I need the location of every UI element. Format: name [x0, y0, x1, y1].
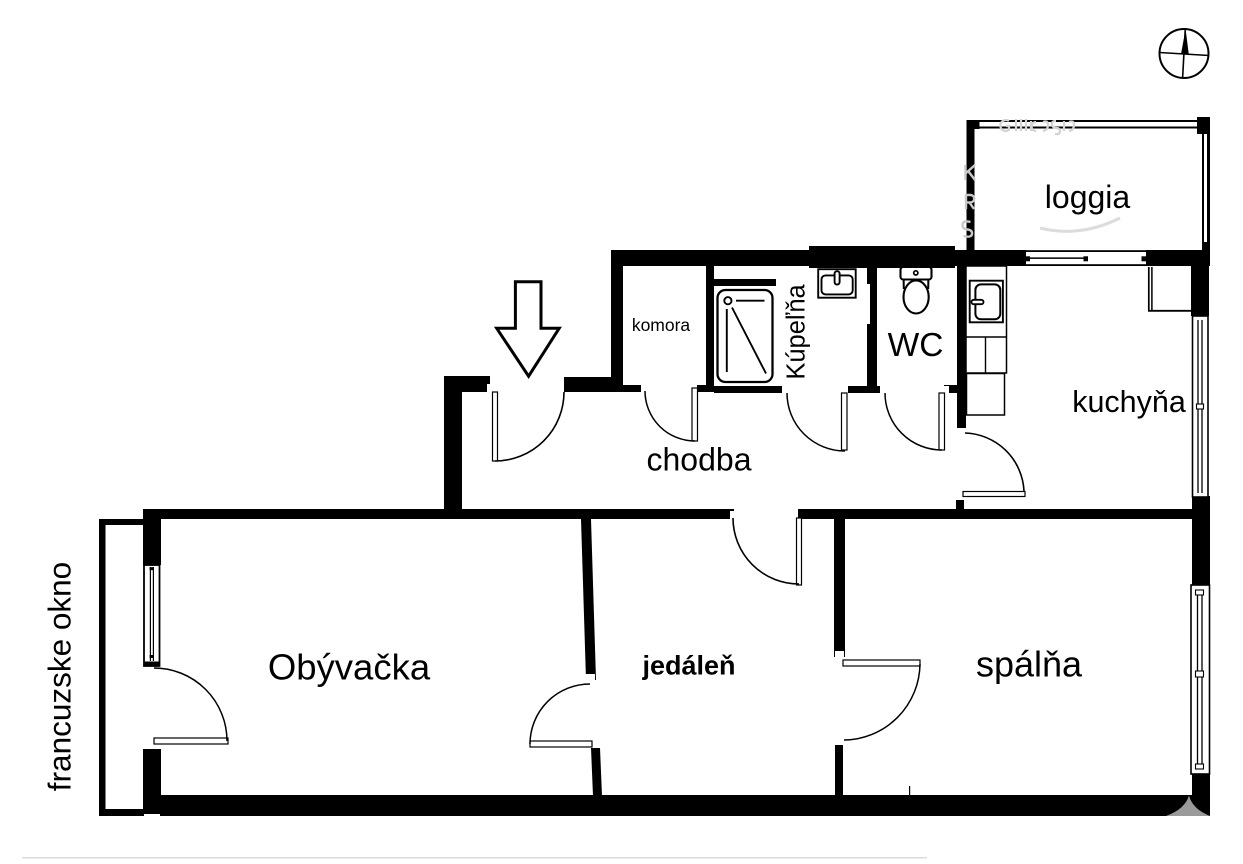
svg-text:Kúpeľňa: Kúpeľňa: [783, 284, 811, 380]
svg-text:loggia: loggia: [1045, 179, 1131, 215]
svg-text:Obývačka: Obývačka: [268, 647, 431, 688]
svg-text:spálňa: spálňa: [976, 644, 1083, 685]
svg-text:jedáleň: jedáleň: [641, 651, 735, 681]
svg-text:francuzske okno: francuzske okno: [42, 562, 78, 791]
svg-text:chodba: chodba: [647, 442, 752, 478]
svg-text:WC: WC: [888, 327, 944, 364]
svg-text:komora: komora: [632, 315, 691, 335]
svg-text:kuchyňa: kuchyňa: [1072, 385, 1186, 419]
